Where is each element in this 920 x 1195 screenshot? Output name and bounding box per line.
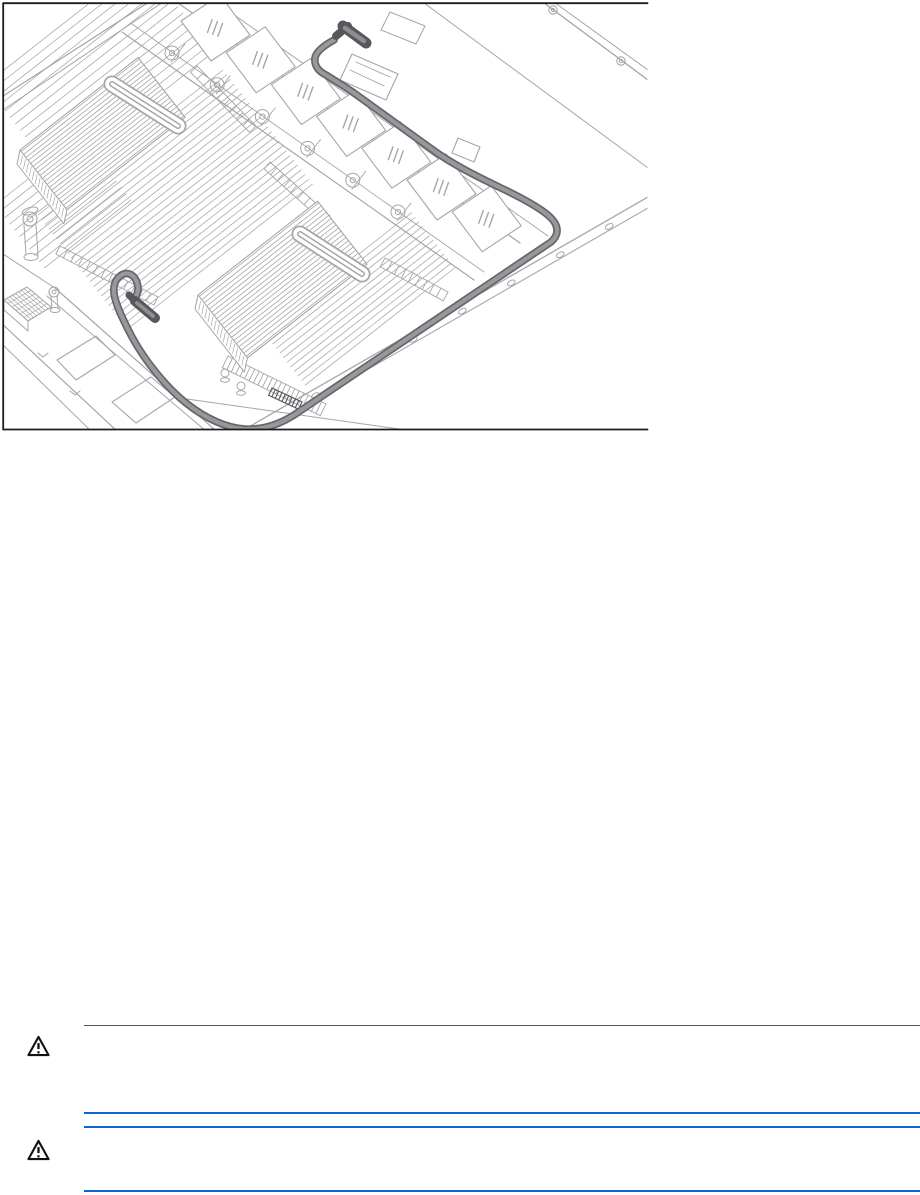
figure-art [0,0,648,436]
server-cable-routing-figure [0,0,660,440]
figure-container [0,0,660,440]
caution2-text [84,1137,908,1187]
caution1-text [84,1033,908,1107]
document-page [0,0,920,1195]
caution1-top-rule [84,1025,920,1026]
warning-triangle-icon [27,1035,50,1057]
caution2-top-rule [84,1126,920,1128]
caution1-bottom-rule [84,1112,920,1114]
warning-triangle-icon [27,1139,50,1161]
caution2-bottom-rule [84,1190,920,1192]
